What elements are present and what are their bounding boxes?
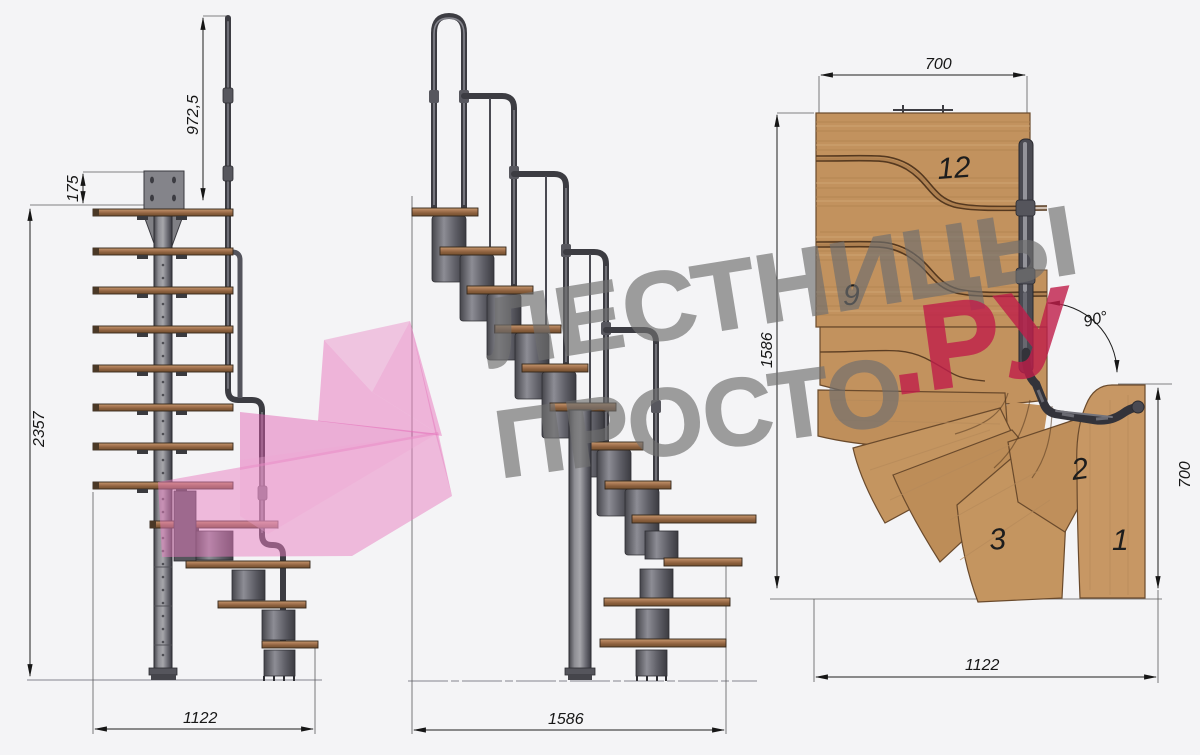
svg-text:1: 1 xyxy=(1112,524,1129,557)
svg-text:.РУ: .РУ xyxy=(879,260,1084,420)
svg-text:1122: 1122 xyxy=(965,657,1000,674)
svg-text:2357: 2357 xyxy=(31,410,48,448)
svg-text:12: 12 xyxy=(936,151,972,186)
svg-text:1122: 1122 xyxy=(183,710,218,727)
svg-text:700: 700 xyxy=(925,56,952,73)
svg-text:972,5: 972,5 xyxy=(185,95,202,135)
svg-text:3: 3 xyxy=(988,523,1008,557)
svg-text:1586: 1586 xyxy=(548,711,584,728)
svg-text:700: 700 xyxy=(1177,461,1194,488)
svg-text:175: 175 xyxy=(65,175,82,202)
